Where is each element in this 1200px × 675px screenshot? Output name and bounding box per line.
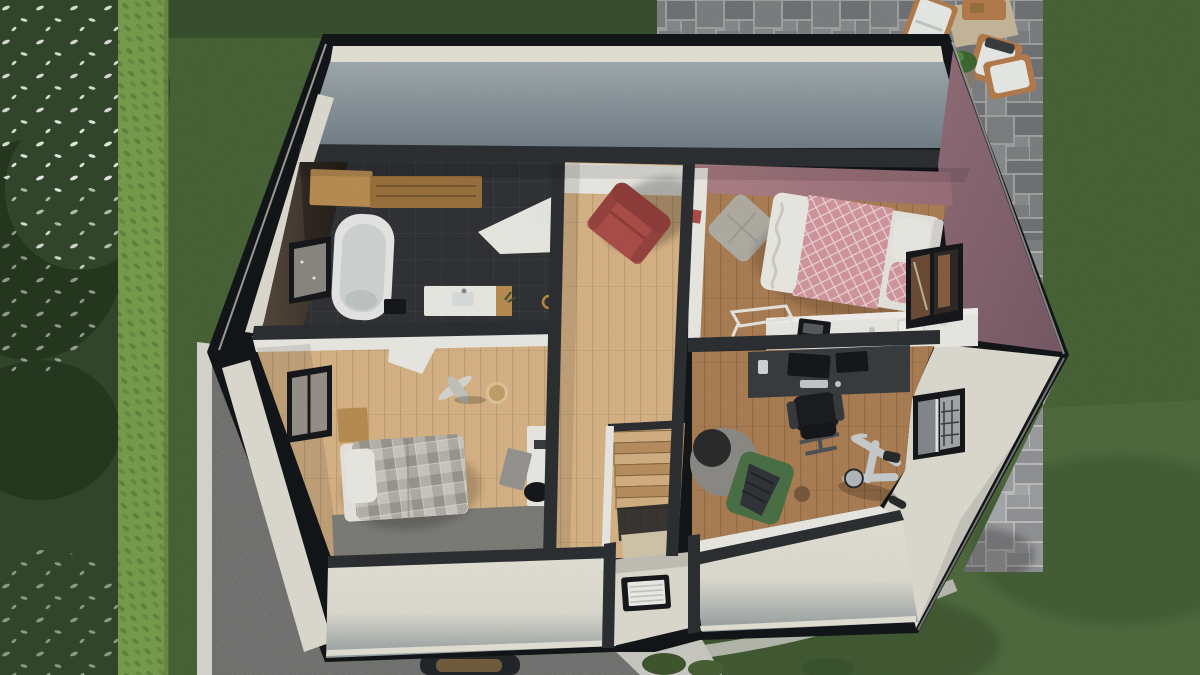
scene-canvas xyxy=(0,0,1200,675)
floorplan-3d-render xyxy=(0,0,1200,675)
film-grain xyxy=(0,0,1200,675)
